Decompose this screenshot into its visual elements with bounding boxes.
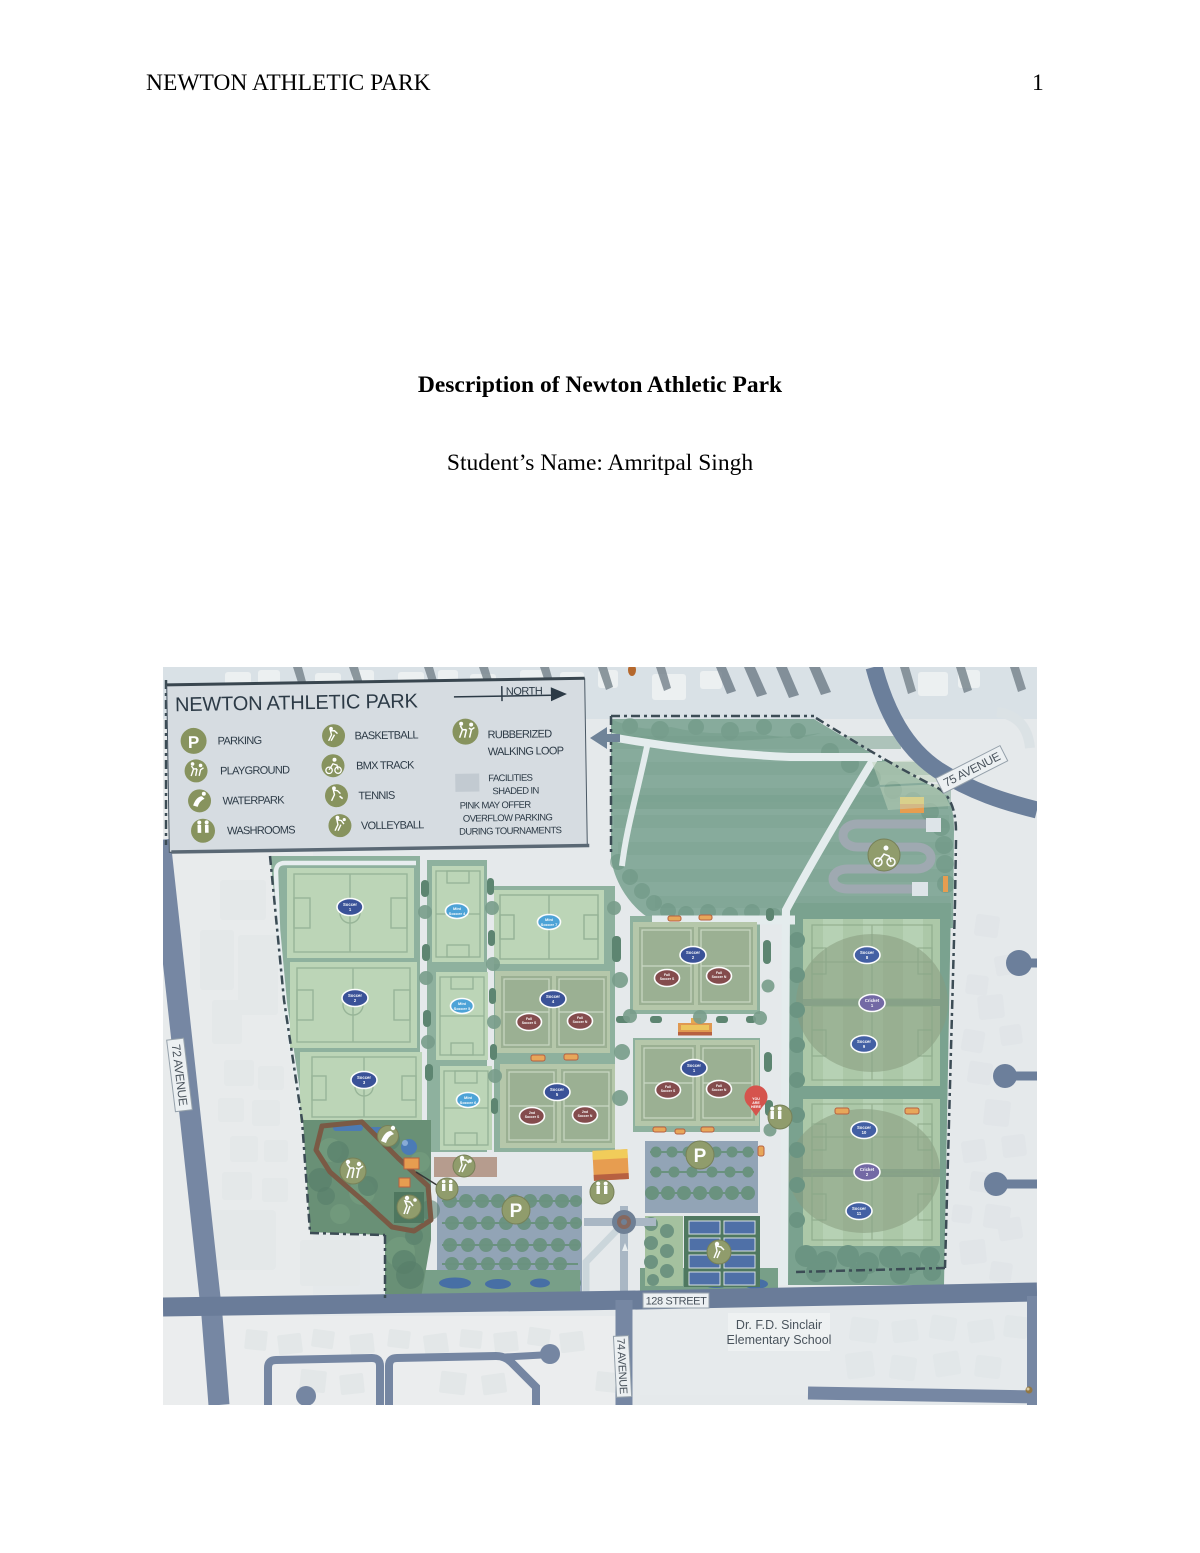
svg-text:DURING TOURNAMENTS: DURING TOURNAMENTS [459,825,562,838]
svg-text:NORTH: NORTH [506,685,543,698]
svg-text:FACILITIES: FACILITIES [488,773,533,785]
svg-text:OVERFLOW PARKING: OVERFLOW PARKING [463,812,553,824]
svg-text:VOLLEYBALL: VOLLEYBALL [361,819,424,832]
svg-text:TENNIS: TENNIS [358,790,395,803]
svg-text:PINK MAY OFFER: PINK MAY OFFER [460,800,532,812]
svg-text:WALKING LOOP: WALKING LOOP [488,745,564,758]
svg-text:PARKING: PARKING [218,735,262,748]
svg-text:P: P [188,733,200,752]
svg-text:BASKETBALL: BASKETBALL [354,729,418,742]
svg-text:RUBBERIZED: RUBBERIZED [487,728,552,741]
svg-text:PLAYGROUND: PLAYGROUND [220,764,290,777]
svg-text:NEWTON ATHLETIC PARK: NEWTON ATHLETIC PARK [175,690,419,716]
svg-text:WATERPARK: WATERPARK [222,794,285,807]
svg-text:SHADED IN: SHADED IN [492,785,539,797]
svg-text:WASHROOMS: WASHROOMS [227,824,295,837]
svg-text:BMX TRACK: BMX TRACK [356,759,415,772]
